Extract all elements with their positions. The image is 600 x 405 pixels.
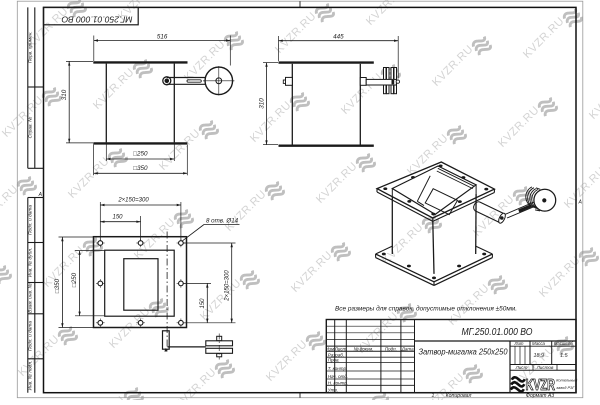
svg-text:Лит: Лит	[514, 341, 524, 346]
svg-text:1: 1	[432, 393, 435, 399]
svg-text:Пров.: Пров.	[328, 358, 340, 363]
svg-text:Инв. № дубл.: Инв. № дубл.	[28, 248, 34, 278]
svg-text:МГ.250.01.000 ВО: МГ.250.01.000 ВО	[462, 327, 533, 338]
svg-text:А: А	[38, 192, 43, 198]
svg-text:Формат А3: Формат А3	[526, 393, 554, 399]
svg-text:□250: □250	[133, 151, 148, 158]
svg-text:Н. контр.: Н. контр.	[328, 380, 348, 385]
svg-text:8 отв. Ø14: 8 отв. Ø14	[206, 218, 239, 225]
svg-text:Разраб.: Разраб.	[328, 352, 344, 357]
svg-text:Взам. инв. №: Взам. инв. №	[28, 283, 34, 313]
svg-text:1:5: 1:5	[560, 353, 568, 359]
svg-text:Подп. и дата: Подп. и дата	[28, 321, 34, 351]
svg-text:Подп.: Подп.	[385, 346, 397, 351]
svg-text:Лист: Лист	[515, 365, 528, 370]
svg-text:Котельный: Котельный	[556, 377, 578, 382]
svg-text:Лист: Лист	[334, 346, 347, 351]
svg-text:МГ.250.01.000 ВО: МГ.250.01.000 ВО	[61, 14, 133, 23]
svg-text:Нач. отд.: Нач. отд.	[328, 374, 348, 379]
svg-text:18,9: 18,9	[534, 353, 545, 359]
svg-text:Дата: Дата	[401, 346, 414, 351]
svg-text:завод РЗГ: завод РЗГ	[555, 385, 575, 390]
svg-text:516: 516	[157, 33, 168, 40]
svg-text:Подп. и дата: Подп. и дата	[28, 205, 34, 235]
svg-text:2×150=300: 2×150=300	[117, 198, 149, 204]
svg-text:Листов: Листов	[536, 365, 554, 370]
svg-text:310: 310	[61, 89, 68, 100]
svg-text:KVZR: KVZR	[526, 377, 556, 394]
svg-text:Справ. №: Справ. №	[28, 117, 34, 139]
svg-text:Т. контр.: Т. контр.	[328, 366, 347, 371]
svg-text:445: 445	[333, 34, 344, 41]
svg-text:150: 150	[200, 298, 206, 309]
svg-text:310: 310	[258, 98, 265, 109]
svg-text:Все размеры для справок, допус: Все размеры для справок, допустимые откл…	[335, 304, 517, 312]
svg-text:□250: □250	[71, 272, 78, 287]
svg-text:□350: □350	[54, 278, 61, 293]
svg-text:Масса: Масса	[532, 341, 546, 346]
svg-text:150: 150	[112, 215, 123, 221]
svg-text:Перв. примен.: Перв. примен.	[28, 31, 34, 63]
svg-text:А: А	[578, 200, 583, 206]
svg-text:Утв.: Утв.	[328, 387, 338, 392]
svg-text:Затвор-мигалка 250х250: Затвор-мигалка 250х250	[419, 347, 508, 357]
svg-text:2×150=300: 2×150=300	[224, 270, 230, 302]
svg-text:№ докум.: № докум.	[354, 346, 374, 351]
svg-text:□350: □350	[133, 165, 148, 172]
svg-text:Инв. № подл.: Инв. № подл.	[28, 361, 34, 391]
svg-text:Масштаб: Масштаб	[554, 341, 574, 346]
svg-text:Копировал: Копировал	[446, 393, 472, 399]
